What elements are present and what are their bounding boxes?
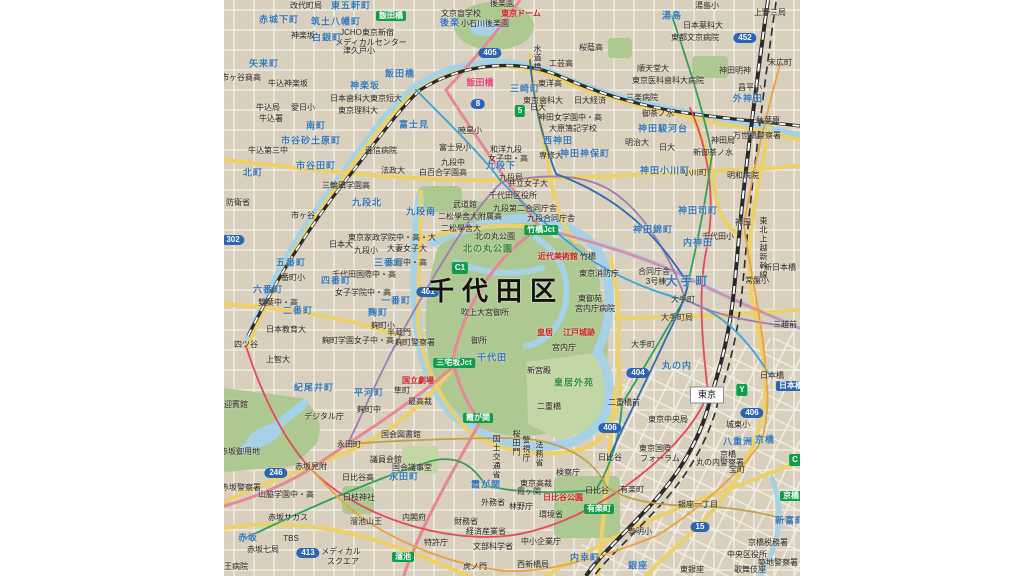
map-label: 暁星小: [458, 127, 482, 135]
map-label: 末広町: [768, 59, 792, 67]
map-label: 平河町: [354, 389, 384, 398]
map-label: 霞が関: [463, 413, 493, 423]
map-label: 逓信病院: [365, 147, 397, 155]
map-label: 特許庁: [424, 539, 448, 547]
map-label: 千代田区役所: [489, 192, 537, 200]
map-label: 城東小: [726, 421, 750, 429]
map-label: 九段南: [406, 208, 436, 217]
map-label: 改代町局: [290, 2, 322, 10]
map-label: 明和病院: [727, 172, 759, 180]
map-label: 神田女学園中・高: [538, 114, 602, 122]
map-label: 大手町: [665, 275, 710, 287]
map-label: 番町小: [281, 274, 305, 282]
map-label: 皇居外苑: [554, 379, 594, 388]
map-label: 赤坂サカス: [268, 514, 308, 522]
map-label: 246: [264, 468, 287, 478]
map-label: 東京: [690, 387, 724, 404]
map-label: 市谷砂土原町: [281, 137, 341, 146]
map-label: 西新橋局: [517, 561, 549, 569]
map-label: 452: [733, 33, 756, 43]
map-label: 明治大: [625, 139, 649, 147]
map-label: 外務省: [481, 499, 505, 507]
map-label: 新宮殿: [527, 367, 551, 375]
map-label: 上智大: [266, 356, 290, 364]
map-label: 銀座一丁目: [678, 501, 718, 509]
map-label: 南町: [306, 122, 326, 131]
map-label: 赤坂御用地: [224, 448, 260, 456]
map-label: 東京中央局: [648, 416, 688, 424]
map-label: 日大: [659, 144, 675, 152]
map-label: 北の丸公園: [475, 233, 515, 241]
map-label: 溜池山王: [350, 518, 382, 526]
map-label: 千代田小: [702, 233, 734, 241]
map-label: 日本橋: [760, 372, 784, 380]
map-label: 二重橋: [537, 403, 561, 411]
map-label: 歌舞伎座: [734, 566, 766, 574]
map-label: 迎賓館: [224, 401, 248, 409]
map-label: 林野庁: [509, 503, 533, 511]
map-label: 経済産業省: [466, 528, 506, 536]
map-label: 秋葉原: [756, 117, 780, 125]
map-label: 牛込署: [259, 115, 283, 123]
map-label: 東京消防庁: [579, 270, 619, 278]
map-label: 牛込第三中: [248, 147, 288, 155]
map-label: 二番町: [283, 307, 313, 316]
map-label: 東京医科歯科大病院: [632, 77, 704, 85]
map-label: 5: [515, 105, 525, 117]
map-label: 虎ノ門: [463, 563, 487, 571]
map-label: 山王病院: [224, 563, 248, 571]
map-label: 麹町中: [357, 406, 381, 414]
map-label: 湯島: [662, 12, 682, 21]
map-label: 内閣府: [402, 514, 426, 522]
map-label: 財務省: [454, 518, 478, 526]
map-label: 飯田橋: [376, 11, 406, 21]
map-label: 東京高裁: [520, 480, 552, 488]
map-label: 万世橋警察署: [733, 132, 781, 140]
map-label: 大手町: [631, 341, 655, 349]
map-label: 最高裁: [408, 398, 432, 406]
map-label: 三宅坂Jct: [433, 358, 475, 368]
map-label: 大手町局: [661, 314, 693, 322]
map-label: 九段合同庁舎: [527, 215, 575, 223]
map-label: 順天堂大: [637, 65, 669, 73]
map-label: 3号棟: [646, 278, 666, 286]
map-label: TBS: [283, 535, 299, 543]
map-label: 後楽園: [490, 0, 514, 8]
map-label: スクエア: [327, 558, 359, 566]
map-label: 市ヶ谷商高: [224, 74, 261, 82]
map-label: 15: [691, 522, 710, 532]
map-label: 市ヶ谷: [291, 212, 315, 220]
map-label: 日枝神社: [343, 494, 375, 502]
map-label-layer: 改代町局東五軒町赤城下町筑土八幡町飯田橋白銀町JCHO東京新宿メディカルセンター…: [224, 0, 800, 576]
map-label: 国土交通省: [492, 435, 500, 480]
map-label: 永田町: [389, 473, 419, 482]
tokyo-chiyoda-map[interactable]: 改代町局東五軒町赤城下町筑土八幡町飯田橋白銀町JCHO東京新宿メディカルセンター…: [224, 0, 800, 576]
map-label: 白百合学園高: [419, 169, 467, 177]
map-label: 竹橋Jct: [524, 225, 558, 235]
map-label: 東五軒町: [331, 2, 371, 11]
map-label: C: [789, 454, 800, 466]
map-label: 愛日小: [291, 104, 315, 112]
map-label: 小石川後楽園: [461, 20, 509, 28]
map-label: 千代田区: [428, 279, 564, 305]
map-label: 神田: [735, 219, 751, 227]
map-label: 警視庁: [522, 436, 530, 463]
map-label: 日本教育大: [266, 326, 306, 334]
map-label: JCHO東京新宿: [340, 29, 394, 37]
map-label: 大妻女子大: [387, 245, 427, 253]
page: 改代町局東五軒町赤城下町筑土八幡町飯田橋白銀町JCHO東京新宿メディカルセンター…: [0, 0, 1024, 576]
map-label: 302: [224, 235, 245, 245]
map-label: 紀尾井町: [294, 384, 334, 393]
map-label: 九段小: [354, 247, 378, 255]
map-label: 東北上越新幹線: [759, 217, 767, 280]
map-label: 新御茶ノ水: [693, 149, 733, 157]
map-label: 富士見: [399, 121, 429, 130]
map-label: 国立劇場: [402, 377, 434, 385]
map-label: 麹町学園女子中・高: [322, 337, 394, 345]
map-label: 筑土八幡町: [311, 18, 361, 27]
map-label: 神田司町: [678, 207, 718, 216]
map-label: 吹上大宮御所: [461, 309, 509, 317]
map-label: 中小企業庁: [521, 538, 561, 546]
map-label: 神楽坂: [350, 82, 380, 91]
map-label: 上野三局: [754, 9, 786, 17]
map-label: 宮内庁病院: [575, 305, 615, 313]
map-label: 半蔵門: [387, 329, 411, 337]
map-label: 検察庁: [556, 469, 580, 477]
map-label: 共立女子大: [508, 180, 548, 188]
map-label: 九段下: [486, 162, 516, 171]
map-label: 新富町: [775, 517, 800, 526]
map-label: 麹町: [368, 309, 388, 318]
map-label: 日本薬科大: [683, 22, 723, 30]
map-label: 京橋: [780, 491, 800, 501]
map-label: 東御苑: [578, 295, 602, 303]
map-label: 麹町警察署: [395, 339, 435, 347]
map-label: 牛込局: [256, 104, 280, 112]
map-label: 武道館: [453, 201, 477, 209]
map-label: 406: [740, 408, 763, 418]
map-label: 神田明神: [719, 67, 751, 75]
map-label: 昌平小: [738, 84, 762, 92]
map-label: 北町: [243, 169, 263, 178]
map-label: 霞ヶ関: [517, 488, 541, 496]
map-label: 桜蔭高: [579, 44, 603, 52]
map-label: 千代田: [477, 354, 507, 363]
map-label: 御茶ノ水: [642, 110, 674, 118]
map-label: 赤坂見附: [295, 463, 327, 471]
map-label: 東都文京病院: [671, 34, 719, 42]
map-label: 泰明小: [628, 528, 652, 536]
map-label: 飯田橋: [466, 79, 493, 88]
map-label: 近代美術館: [538, 253, 578, 261]
map-label: 桜田門: [512, 430, 520, 457]
map-label: 霞が関: [471, 481, 501, 490]
map-label: 法政大: [381, 167, 405, 175]
map-label: 八重洲: [723, 438, 753, 447]
map-label: 日大経済: [574, 97, 606, 105]
map-label: 国会図書館: [381, 431, 421, 439]
map-label: 山脇学園中・高: [258, 491, 314, 499]
map-label: 矢来町: [249, 60, 279, 69]
map-label: 有楽町: [620, 486, 644, 494]
map-label: 東銀座: [680, 566, 704, 574]
map-label: 京橋税務署: [748, 539, 788, 547]
map-label: 法務省: [535, 441, 543, 468]
map-label: デジタル庁: [304, 413, 344, 421]
map-label: 日比谷高: [342, 474, 374, 482]
map-label: 東京国際: [639, 445, 671, 453]
map-label: 永田町: [337, 441, 361, 449]
map-label: 防衛省: [226, 199, 250, 207]
map-label: 神田駿河台: [638, 125, 688, 134]
map-label: 文部科学省: [473, 543, 513, 551]
map-label: 御所: [471, 337, 487, 345]
map-label: 九段第二合同庁舎: [493, 205, 557, 213]
map-label: Y: [736, 384, 747, 396]
map-label: フォーラム: [640, 455, 680, 463]
map-label: 工芸高: [549, 60, 573, 68]
map-label: 東京家政学院中・高・大: [348, 234, 436, 242]
map-label: 水道橋: [533, 45, 541, 72]
map-label: 四番町: [321, 277, 351, 286]
map-label: 後楽: [440, 19, 460, 28]
map-label: 丸の内: [662, 362, 692, 371]
map-label: 神楽坂: [291, 32, 315, 40]
map-label: 三輪田学園高: [322, 182, 370, 190]
map-label: 隼町: [394, 387, 410, 395]
map-label: 三越前: [773, 321, 797, 329]
map-label: 赤坂七局: [247, 546, 279, 554]
map-label: 有楽町: [584, 504, 614, 514]
map-label: 413: [296, 548, 319, 558]
map-label: 東京理科大: [338, 107, 378, 115]
map-label: 内幸町: [570, 554, 600, 563]
map-label: 竹橋: [580, 253, 596, 261]
map-label: 神田錦町: [633, 226, 673, 235]
map-label: 日大: [530, 104, 546, 112]
map-label: 三崎町: [510, 85, 540, 94]
map-label: 和洋九段: [490, 146, 522, 154]
map-label: 東洋高: [538, 80, 562, 88]
map-label: 外神田: [733, 95, 763, 104]
map-label: 赤城下町: [259, 16, 299, 25]
map-label: 新日本橋: [764, 264, 796, 272]
map-label: 環境省: [539, 511, 563, 519]
map-label: 日比谷公園: [543, 494, 583, 502]
map-label: 富士見小: [439, 144, 471, 152]
map-label: 江戸城跡: [563, 329, 595, 337]
map-label: 銀座: [628, 562, 648, 571]
map-label: 宝町: [729, 466, 745, 474]
map-label: 四ツ谷: [234, 341, 258, 349]
map-label: 京橋: [720, 451, 736, 459]
map-label: 飯田橋: [385, 70, 415, 79]
map-label: 日比谷: [585, 487, 609, 495]
map-label: 溜池: [392, 552, 414, 562]
map-label: 国会議事堂: [392, 464, 432, 472]
map-label: C1: [452, 262, 468, 274]
map-label: 赤坂警察署: [224, 484, 261, 492]
map-label: 神田神保町: [560, 150, 610, 159]
map-label: 三番町: [374, 259, 404, 268]
map-label: 日本歯科大東京短大: [330, 95, 402, 103]
map-label: 京橋: [755, 436, 775, 445]
map-label: 六番町: [253, 286, 283, 295]
map-label: 牛込神楽坂: [268, 80, 308, 88]
map-label: 404: [626, 368, 649, 378]
map-label: 406: [598, 423, 621, 433]
map-label: 津久戸小: [343, 47, 375, 55]
map-label: 北の丸公園: [463, 245, 513, 254]
map-label: 九段中: [441, 159, 465, 167]
map-label: 二重橋前: [608, 399, 640, 407]
map-label: 宮内庁: [552, 344, 576, 352]
map-label: 大原簿記学校: [549, 125, 597, 133]
map-label: メディカル: [321, 548, 360, 556]
map-label: 小川町: [683, 169, 707, 177]
map-label: 市谷田町: [296, 162, 336, 171]
map-label: 二松學舍大附属高: [438, 213, 502, 221]
map-label: 一番町: [381, 297, 411, 306]
map-label: 湯島小: [695, 2, 719, 10]
map-label: 三楽病院: [626, 94, 658, 102]
map-label: 五番町: [276, 259, 306, 268]
map-label: 8: [471, 99, 485, 109]
map-label: 赤坂: [238, 534, 258, 543]
map-label: 日本大: [329, 241, 353, 249]
map-label: 405: [478, 48, 501, 58]
map-label: 東京ドーム: [501, 10, 541, 18]
map-label: 皇居: [537, 329, 553, 337]
map-label: 西神田: [543, 137, 573, 146]
map-label: 九段北: [352, 199, 382, 208]
map-label: 神田局: [711, 137, 735, 145]
map-label: 大手町: [671, 296, 695, 304]
map-label: 日本橋: [776, 381, 800, 391]
map-label: 日比谷: [598, 454, 622, 462]
